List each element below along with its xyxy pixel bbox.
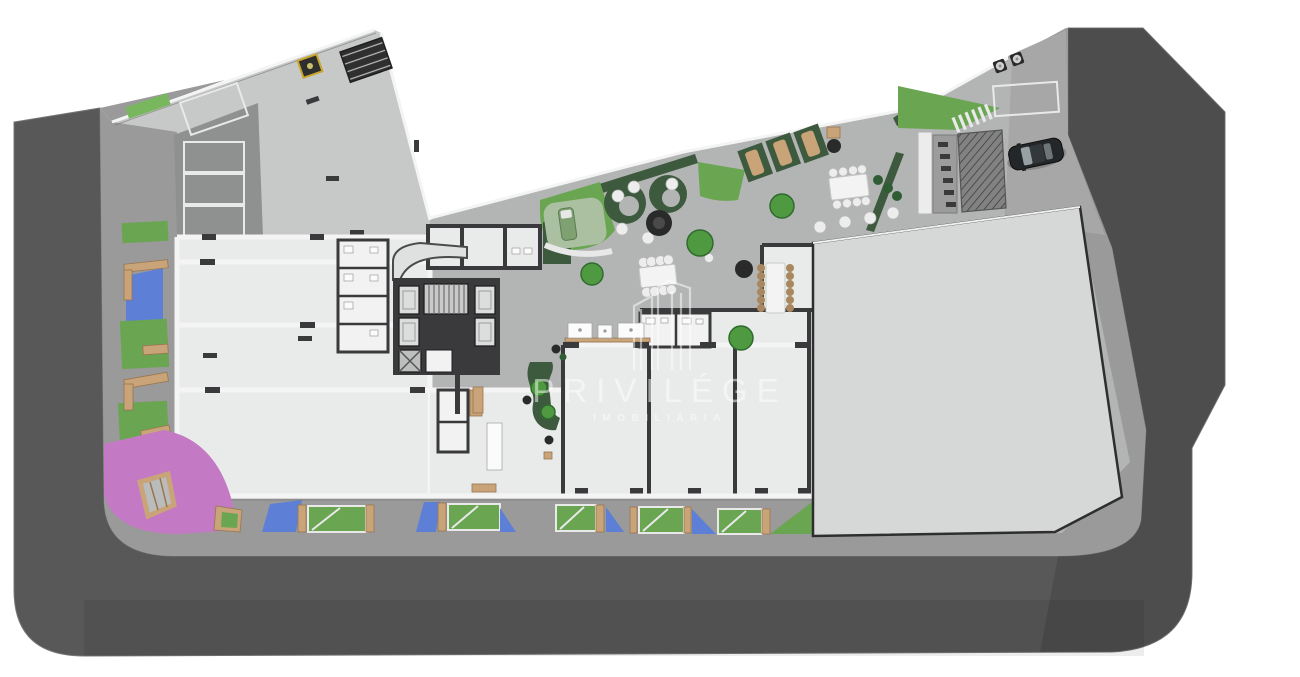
tree-icon (770, 194, 794, 218)
column-tick (203, 353, 217, 358)
restroom-block (338, 240, 388, 352)
stool-wood (544, 452, 552, 459)
wall-tick (455, 372, 460, 414)
shaft-x-brace (399, 350, 421, 372)
bush (892, 191, 902, 201)
paver-stall (556, 505, 596, 531)
planter-bar (630, 507, 637, 533)
door-tick (563, 342, 579, 348)
fixture (524, 248, 532, 254)
column-tick (414, 140, 419, 152)
planter-bar (684, 507, 691, 533)
bush (883, 183, 893, 193)
stool (814, 221, 826, 233)
watermark-brand: PRIVILÉGE (532, 372, 787, 409)
door-tick (700, 342, 716, 348)
bush (873, 175, 883, 185)
door-tick (205, 387, 220, 393)
door-tick (795, 342, 811, 348)
core-lobby (426, 350, 452, 372)
street-shade-bottom (84, 600, 1144, 656)
paver-stall (308, 506, 366, 532)
cafe-chair (552, 345, 561, 354)
bench-icon (143, 344, 169, 355)
stool (864, 212, 876, 224)
grill-icon (827, 139, 841, 153)
canopy-strip (918, 132, 932, 214)
column-tick (326, 176, 339, 181)
cafe-chair (523, 396, 532, 405)
stool (666, 178, 678, 190)
door-tick (410, 387, 425, 393)
side-table (827, 127, 840, 138)
curved-bench (140, 474, 174, 516)
stool (887, 207, 899, 219)
planter-bar (298, 505, 306, 532)
equipment-strip (933, 135, 957, 213)
floor-plan-render: PRIVILÉGE IMOBILIÁRIA (0, 0, 1300, 677)
cafe-chair (545, 436, 554, 445)
column-tick (298, 336, 312, 341)
stool (839, 216, 851, 228)
grass-strip (120, 319, 169, 369)
bush (560, 354, 567, 361)
elevator-icon (399, 286, 419, 314)
staircase-icon (424, 284, 468, 314)
door-leaf (473, 387, 483, 413)
tree-icon (729, 326, 753, 350)
large-hall (813, 207, 1122, 536)
elevator-icon (475, 318, 495, 346)
planter-bar (596, 505, 604, 532)
fixture (512, 248, 520, 254)
door-tick (202, 234, 216, 240)
elevator-icon (399, 318, 419, 346)
stool (612, 190, 624, 202)
stool (628, 181, 640, 193)
vehicle-ramp (958, 130, 1006, 212)
tree-icon (581, 263, 603, 285)
door-tick (300, 322, 315, 328)
planter-bar (366, 505, 374, 532)
grass-strip (122, 221, 169, 243)
planter-bar (762, 509, 770, 534)
stool (616, 223, 628, 235)
counter (487, 423, 502, 470)
restroom-block (640, 313, 710, 347)
paver-stall (639, 507, 684, 533)
watermark-tagline: IMOBILIÁRIA (593, 411, 727, 424)
door-tick (310, 234, 324, 240)
dining-table-long (828, 164, 871, 209)
round-table (735, 260, 753, 278)
cabinet (472, 484, 496, 492)
planter-bar (438, 503, 446, 531)
elevator-icon (475, 286, 495, 314)
sink-counter (565, 323, 650, 342)
door-tick (200, 259, 215, 265)
hall-roof-slab (813, 207, 1122, 536)
lounge-deck (542, 196, 608, 251)
fire-table-center (653, 217, 665, 229)
paver-stall (718, 509, 762, 534)
paver-stall (448, 504, 500, 530)
column-tick (350, 230, 364, 235)
planter-triangle (214, 506, 242, 532)
tree-icon (687, 230, 713, 256)
